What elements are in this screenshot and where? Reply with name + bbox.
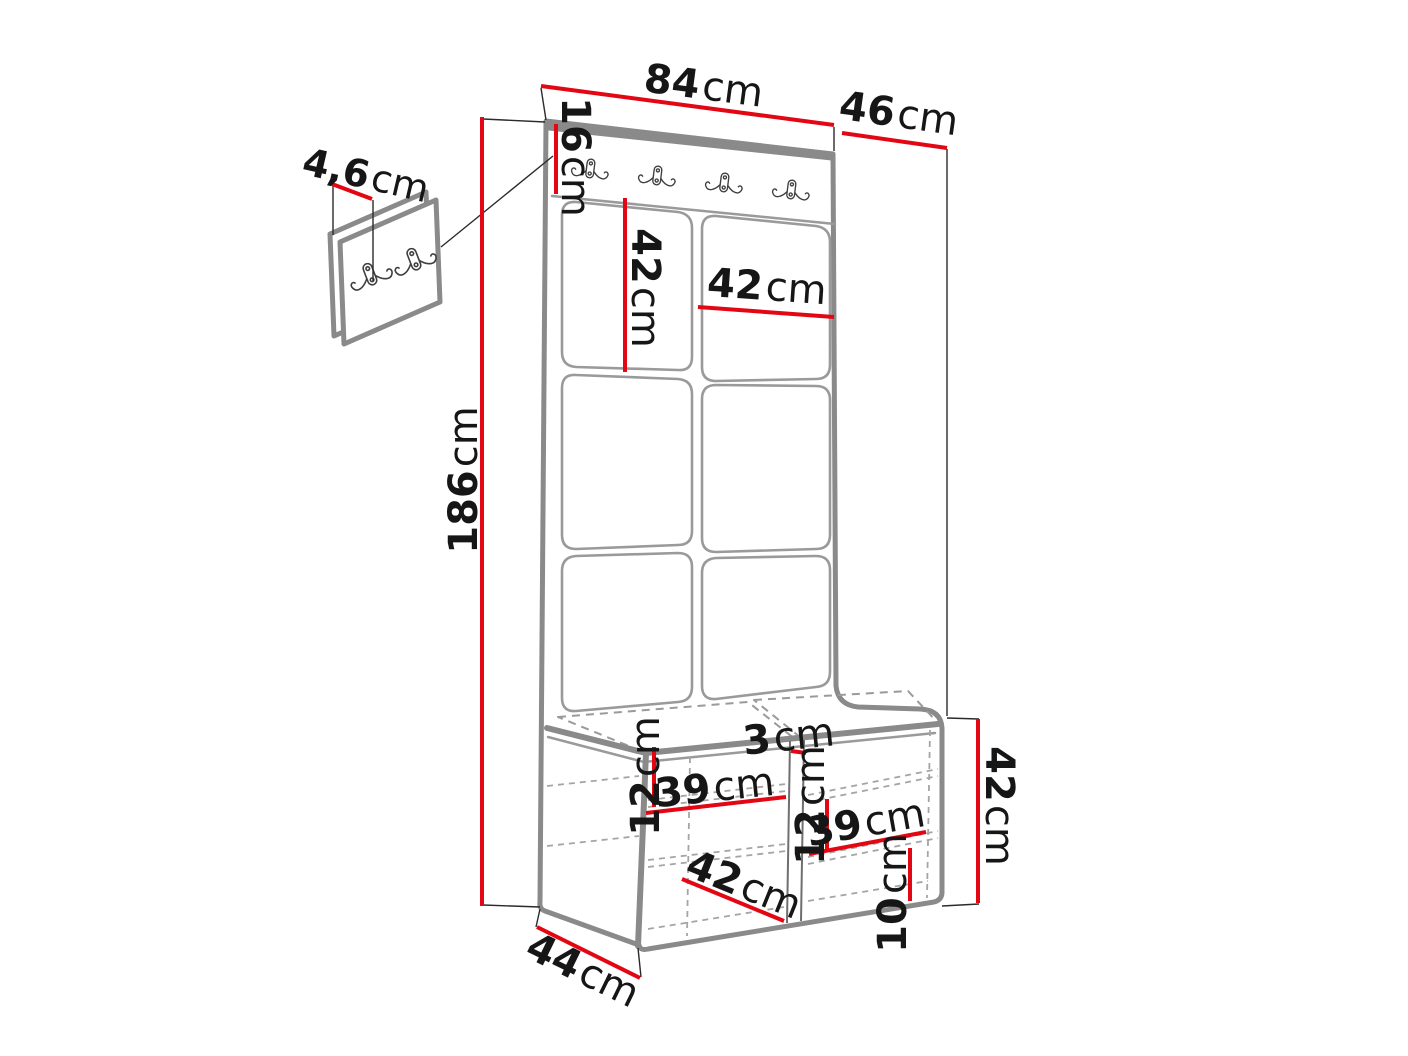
ext-line xyxy=(942,904,979,906)
dim-wall-panel-size-label: 4,6cm xyxy=(298,139,433,211)
furniture-diagram-canvas: 84cm 46cm 16cm 42cm 42cm 186cm 4,6cm 12c… xyxy=(0,0,1408,1056)
dim-panel-tile-height-label: 42cm xyxy=(622,228,668,348)
dimension-diagram: 84cm 46cm 16cm 42cm 42cm 186cm 4,6cm 12c… xyxy=(0,0,1408,1056)
detail-leader-line xyxy=(441,156,553,247)
ext-line xyxy=(483,905,540,907)
panel-cushion xyxy=(562,553,692,711)
ext-line xyxy=(541,88,546,120)
dim-plinth-height-label: 10cm xyxy=(870,833,916,953)
panel-cushion xyxy=(702,556,830,699)
panel-cushion xyxy=(702,385,830,552)
panel-cushion xyxy=(562,375,692,549)
dim-panel-tile-width-label: 42cm xyxy=(706,260,829,314)
ext-line xyxy=(483,119,545,122)
dim-top-width-label: 84cm xyxy=(641,55,766,116)
dim-bench-height-label: 42cm xyxy=(976,746,1022,866)
ext-line xyxy=(947,718,979,719)
dim-hook-rail-height-label: 16cm xyxy=(552,97,598,217)
dim-total-height-label: 186cm xyxy=(441,406,487,553)
